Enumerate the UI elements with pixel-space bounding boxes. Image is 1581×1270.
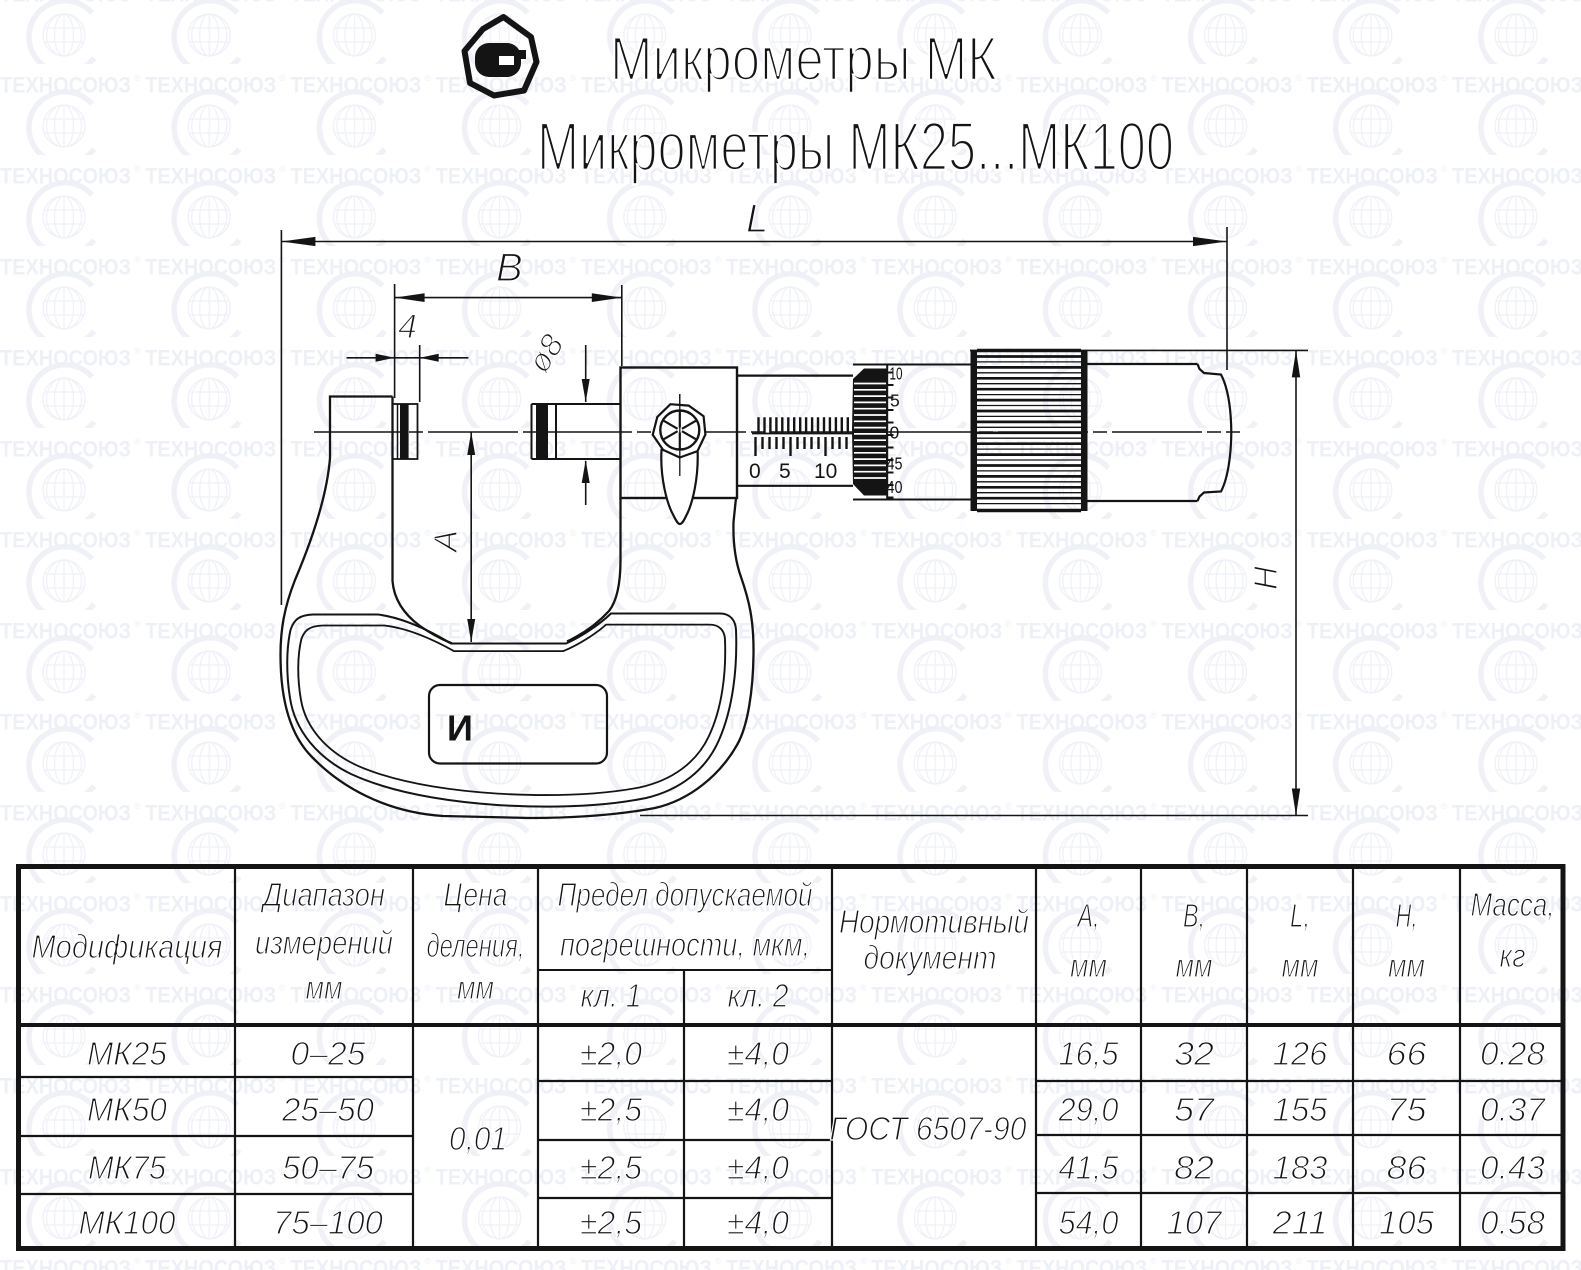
svg-text:кл. 1: кл. 1 — [581, 977, 642, 1014]
svg-text:16,5: 16,5 — [1059, 1035, 1120, 1072]
svg-text:57: 57 — [1174, 1091, 1216, 1128]
svg-text:±4,0: ±4,0 — [727, 1035, 790, 1072]
svg-text:L,: L, — [1290, 897, 1310, 934]
svg-text:Н: Н — [1247, 566, 1284, 590]
svg-text:75–100: 75–100 — [273, 1204, 384, 1241]
svg-text:4: 4 — [398, 308, 417, 346]
svg-text:И: И — [447, 708, 473, 749]
svg-text:±2,0: ±2,0 — [580, 1035, 643, 1072]
svg-text:54,0: 54,0 — [1059, 1204, 1120, 1241]
svg-text:86: 86 — [1387, 1149, 1428, 1186]
svg-text:А,: А, — [1076, 897, 1099, 934]
svg-text:В,: В, — [1183, 897, 1205, 934]
svg-text:0.28: 0.28 — [1480, 1035, 1546, 1072]
svg-text:мм: мм — [457, 969, 494, 1006]
svg-text:кл. 2: кл. 2 — [728, 977, 789, 1014]
svg-text:В: В — [496, 246, 523, 290]
svg-text:L: L — [746, 197, 768, 241]
svg-text:5: 5 — [779, 460, 791, 483]
svg-text:±4,0: ±4,0 — [727, 1204, 790, 1241]
svg-text:45: 45 — [887, 454, 903, 474]
svg-text:41,5: 41,5 — [1059, 1149, 1120, 1186]
svg-text:А: А — [427, 530, 464, 554]
svg-text:Микрометры МК: Микрометры МК — [610, 25, 997, 94]
svg-text:Диапазон: Диапазон — [260, 876, 385, 913]
svg-text:мм: мм — [1176, 947, 1213, 984]
svg-text:0: 0 — [749, 460, 761, 483]
svg-text:107: 107 — [1167, 1204, 1224, 1241]
svg-text:ГОСТ 6507-90: ГОСТ 6507-90 — [830, 1110, 1028, 1147]
svg-text:±2,5: ±2,5 — [580, 1204, 643, 1241]
svg-text:0.43: 0.43 — [1480, 1149, 1546, 1186]
svg-text:10: 10 — [890, 364, 903, 384]
svg-text:МК75: МК75 — [88, 1149, 167, 1186]
svg-text:50–75: 50–75 — [282, 1149, 375, 1186]
svg-text:кг: кг — [1500, 937, 1526, 974]
svg-text:126: 126 — [1273, 1035, 1329, 1072]
svg-text:МК50: МК50 — [87, 1091, 168, 1128]
svg-text:29,0: 29,0 — [1058, 1091, 1120, 1128]
svg-text:Модификация: Модификация — [32, 928, 223, 965]
svg-text:0: 0 — [890, 423, 900, 443]
svg-text:мм: мм — [1388, 947, 1425, 984]
svg-text:МК25: МК25 — [87, 1035, 168, 1072]
svg-text:документ: документ — [864, 939, 997, 976]
svg-text:0–25: 0–25 — [291, 1035, 367, 1072]
svg-text:10: 10 — [814, 460, 837, 483]
svg-text:мм: мм — [1070, 947, 1107, 984]
svg-text:Предел допускаемой: Предел допускаемой — [558, 876, 813, 913]
svg-text:0.37: 0.37 — [1480, 1091, 1547, 1128]
svg-text:±2,5: ±2,5 — [580, 1091, 643, 1128]
svg-text:66: 66 — [1387, 1035, 1428, 1072]
svg-text:40: 40 — [887, 477, 903, 497]
svg-text:0.58: 0.58 — [1480, 1204, 1546, 1241]
svg-text:32: 32 — [1174, 1035, 1214, 1072]
svg-text:211: 211 — [1271, 1204, 1327, 1241]
svg-text:Микрометры МК25...МК100: Микрометры МК25...МК100 — [537, 108, 1174, 185]
svg-text:0,01: 0,01 — [449, 1120, 507, 1157]
svg-text:±4,0: ±4,0 — [727, 1091, 790, 1128]
svg-text:25–50: 25–50 — [281, 1091, 375, 1128]
svg-text:деления,: деления, — [427, 927, 525, 964]
svg-text:183: 183 — [1273, 1149, 1329, 1186]
svg-text:105: 105 — [1379, 1204, 1435, 1241]
svg-text:±2,5: ±2,5 — [580, 1149, 643, 1186]
svg-text:5: 5 — [890, 391, 900, 411]
svg-text:Нормотивный: Нормотивный — [839, 903, 1029, 940]
svg-text:Масса,: Масса, — [1471, 886, 1555, 923]
svg-text:Н,: Н, — [1396, 897, 1418, 934]
svg-text:МК100: МК100 — [79, 1204, 177, 1241]
svg-text:82: 82 — [1174, 1149, 1214, 1186]
svg-text:погрешности, мкм,: погрешности, мкм, — [560, 926, 810, 963]
svg-text:155: 155 — [1273, 1091, 1329, 1128]
svg-text:мм: мм — [1282, 947, 1319, 984]
svg-text:75: 75 — [1387, 1091, 1428, 1128]
svg-text:измерений: измерений — [255, 924, 393, 961]
svg-text:мм: мм — [306, 969, 343, 1006]
svg-text:±4,0: ±4,0 — [727, 1149, 790, 1186]
svg-text:Цена: Цена — [444, 876, 508, 913]
